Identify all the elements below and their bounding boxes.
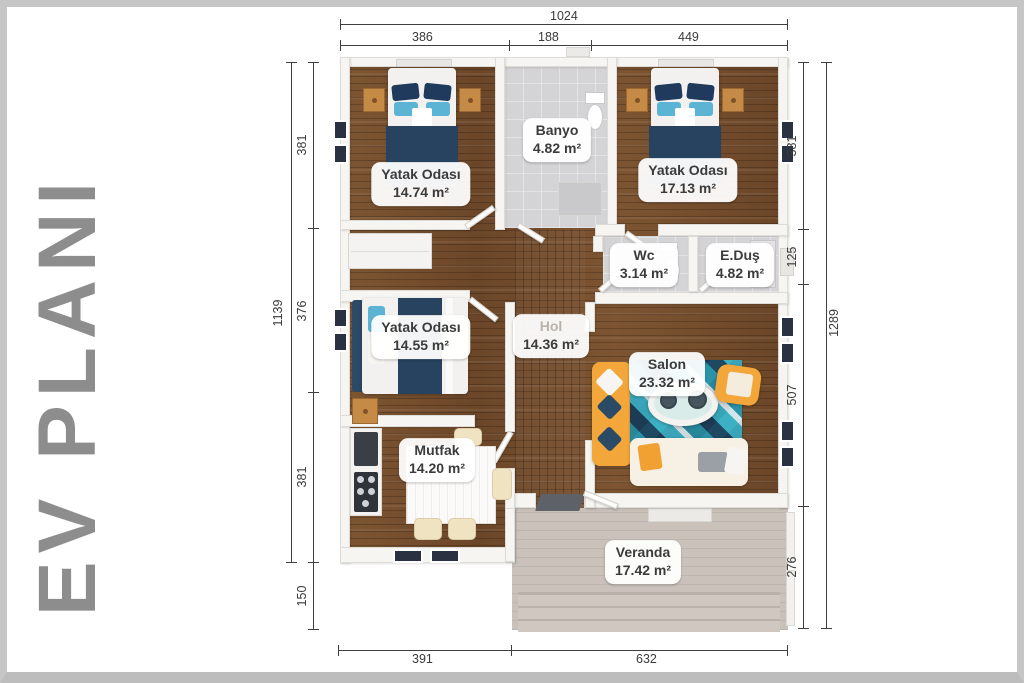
kitchen-sink-icon [354, 432, 378, 466]
dim-tick [308, 562, 319, 563]
window-bedroom3-b [333, 332, 348, 352]
sofa-pillow [637, 443, 662, 472]
pillow [654, 83, 683, 102]
room-name: Yatak Odası [648, 162, 727, 180]
room-area: 4.82 m² [716, 265, 764, 283]
dim-line-top-total [340, 24, 788, 25]
dim-tick [308, 228, 319, 229]
dining-chair [448, 518, 476, 540]
pillow [391, 83, 420, 102]
window-salon-a [780, 316, 795, 338]
room-area: 14.55 m² [381, 337, 460, 355]
window-salon-b [780, 342, 795, 364]
room-area: 17.42 m² [615, 562, 671, 580]
dim-tick [787, 645, 788, 656]
dim-bottom-seg1: 391 [412, 652, 433, 666]
stove-burner [368, 476, 375, 483]
dim-tick [798, 229, 809, 230]
dining-chair [492, 468, 512, 500]
dim-tick [308, 629, 319, 630]
room-label-veranda: Veranda 17.42 m² [605, 540, 681, 584]
hall-floor-planks [515, 230, 585, 508]
dim-tick [511, 645, 512, 656]
room-area: 14.20 m² [409, 460, 465, 478]
room-label-bedroom2: Yatak Odası 17.13 m² [638, 158, 737, 202]
room-area: 14.74 m² [381, 184, 460, 202]
stove-burner [357, 476, 364, 483]
dim-top-seg3: 449 [678, 30, 699, 44]
dim-line-right-segments [803, 62, 804, 629]
window-kitchen-b [430, 549, 460, 563]
wall-wc-left [593, 236, 603, 252]
window-recess-bed2 [658, 59, 714, 67]
toilet-icon [585, 92, 605, 104]
window-salon-c [780, 420, 795, 442]
veranda-landing [648, 508, 712, 522]
room-name: Yatak Odası [381, 166, 460, 184]
chimney-stub [566, 47, 590, 57]
dim-tick [340, 40, 341, 51]
room-area: 17.13 m² [648, 180, 727, 198]
window-bedroom1-b [333, 144, 348, 164]
wall-bedroom1-bottom [340, 220, 470, 230]
room-area: 3.14 m² [620, 265, 668, 283]
room-name: Veranda [615, 544, 671, 562]
window-salon-d [780, 446, 795, 468]
dim-tick [787, 19, 788, 30]
dim-right-seg4: 276 [785, 547, 799, 587]
dim-left-seg3: 381 [295, 457, 309, 497]
room-name: Salon [639, 356, 695, 374]
nightstand [722, 88, 744, 112]
dim-top-seg1: 386 [412, 30, 433, 44]
wall-salon-bottom-left [512, 493, 536, 508]
page-title: EV PLANI [13, 135, 123, 655]
dim-right-seg3: 507 [785, 375, 799, 415]
dim-line-bottom [338, 650, 788, 651]
dim-tick [591, 40, 592, 51]
stove-burner [357, 488, 364, 495]
dim-tick [798, 62, 809, 63]
room-name: Wc [620, 247, 668, 265]
room-label-wc: Wc 3.14 m² [610, 243, 678, 287]
bathroom-vanity [558, 182, 602, 216]
window-recess-bed1 [396, 59, 452, 67]
dining-chair [414, 518, 442, 540]
room-name: Banyo [533, 122, 581, 140]
dim-line-top-segments [340, 45, 788, 46]
wall-kitchen-bottom [340, 547, 515, 563]
pillow [423, 83, 452, 102]
wall-wc-shower-divider [688, 236, 698, 292]
dim-left-total: 1139 [271, 293, 285, 333]
room-label-bathroom: Banyo 4.82 m² [523, 118, 591, 162]
entrance-door-mat [535, 494, 585, 511]
dim-tick [286, 562, 297, 563]
nightstand [626, 88, 648, 112]
nightstand [352, 398, 378, 424]
dim-tick [787, 40, 788, 51]
room-area: 23.32 m² [639, 374, 695, 392]
dim-top-seg2: 188 [538, 30, 559, 44]
dim-tick [308, 392, 319, 393]
dim-tick [798, 628, 809, 629]
veranda-steps [518, 592, 780, 632]
armchair-cushion [726, 371, 754, 397]
dim-left-seg4: 150 [295, 576, 309, 616]
dim-top-total: 1024 [550, 9, 578, 23]
wall-veranda-left-stub [505, 508, 515, 562]
nightstand [459, 88, 481, 112]
window-bedroom1-a [333, 120, 348, 140]
room-name: Mutfak [409, 442, 465, 460]
dim-tick [798, 506, 809, 507]
stove-burner [368, 488, 375, 495]
window-kitchen-a [393, 549, 423, 563]
room-label-bedroom1: Yatak Odası 14.74 m² [371, 162, 470, 206]
room-name: E.Duş [716, 247, 764, 265]
dim-tick [308, 62, 319, 63]
nightstand [363, 88, 385, 112]
pillow [686, 83, 715, 102]
dim-left-seg1: 381 [295, 125, 309, 165]
dim-tick [509, 40, 510, 51]
dim-tick [286, 62, 297, 63]
dim-tick [798, 284, 809, 285]
wall-bedroom2-bottom-b [658, 224, 788, 236]
room-name: Hol [523, 318, 579, 336]
stove-burner [362, 500, 369, 507]
dim-line-right-total [826, 62, 827, 629]
room-name: Yatak Odası [381, 319, 460, 337]
dim-tick [338, 645, 339, 656]
room-label-salon: Salon 23.32 m² [629, 352, 705, 396]
wall-bathroom-right [607, 57, 617, 230]
room-area: 14.36 m² [523, 336, 579, 354]
window-bedroom3-a [333, 308, 348, 328]
hall-closet [348, 233, 432, 269]
dim-right-seg2: 125 [785, 237, 799, 277]
room-label-kitchen: Mutfak 14.20 m² [399, 438, 475, 482]
room-label-hall: Hol 14.36 m² [513, 314, 589, 358]
dim-right-seg1: 381 [785, 126, 799, 166]
dim-left-seg2: 376 [295, 291, 309, 331]
dim-right-total: 1289 [827, 303, 841, 343]
dim-line-left-segments [313, 62, 314, 630]
dim-tick [821, 628, 832, 629]
wall-wc-bottom [595, 292, 788, 304]
dim-tick [340, 19, 341, 30]
wall-bedroom2-bottom-a [595, 224, 625, 236]
dim-bottom-seg2: 632 [636, 652, 657, 666]
wall-bathroom-left [495, 57, 505, 230]
room-label-bedroom3: Yatak Odası 14.55 m² [371, 315, 470, 359]
dim-tick [821, 62, 832, 63]
room-label-shower: E.Duş 4.82 m² [706, 243, 774, 287]
room-area: 4.82 m² [533, 140, 581, 158]
dim-line-left-total [291, 62, 292, 563]
